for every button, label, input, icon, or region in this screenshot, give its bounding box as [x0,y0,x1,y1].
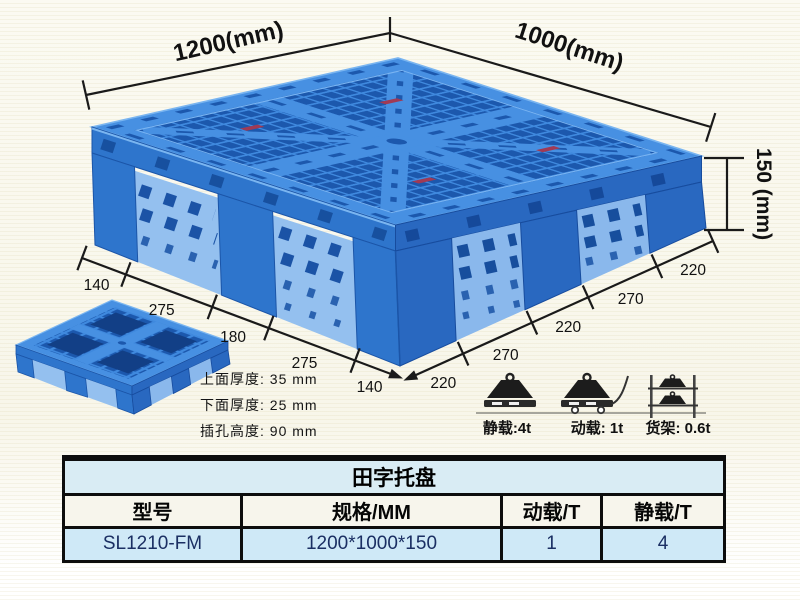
dim-height-label: 150 (mm) [752,148,775,240]
main-pallet-image [92,58,706,366]
static-load-label: 静载:4t [483,419,531,437]
spec-top-thickness: 上面厚度: 35 mm [200,371,318,387]
spec-bottom-thickness: 下面厚度: 25 mm [200,397,318,413]
rack-load-label: 货架: 0.6t [645,419,710,437]
dim-left-seg4: 275 [292,355,318,372]
cell-dynamic-load: 1 [502,527,602,561]
table-header-row: 型号 规格/MM 动载/T 静载/T [64,494,725,527]
dim-right-seg4: 270 [618,291,644,308]
spec-slot-height: 插孔高度: 90 mm [200,423,318,439]
cell-static-load: 4 [602,527,725,561]
thickness-specs: 上面厚度: 35 mm 下面厚度: 25 mm 插孔高度: 90 mm [200,371,318,439]
product-spec-table: 田字托盘 型号 规格/MM 动载/T 静载/T SL1210-FM 1200*1… [62,455,723,563]
dimension-arrowheads [388,369,418,381]
table-title: 田字托盘 [64,458,725,494]
col-header-model: 型号 [64,494,242,527]
dim-left-seg1: 140 [84,277,110,294]
rack-load-shelf-icon [648,375,698,418]
dim-right-seg3: 220 [555,319,581,336]
col-header-dynamic-load: 动载/T [502,494,602,527]
dim-right-seg5: 220 [680,262,706,279]
product-sheet-page: { "illustration": { "dims": { "width": "… [0,0,800,600]
dynamic-load-label: 动载: 1t [571,419,624,437]
dim-left-seg2: 275 [149,302,175,319]
pallet-illustration: 1200(mm) 1000(mm) 150 (mm) 140 275 180 2… [0,0,800,452]
dim-right-seg1: 220 [430,375,456,392]
col-header-static-load: 静载/T [602,494,725,527]
dynamic-load-trolley-icon [561,374,628,413]
col-header-spec: 规格/MM [242,494,502,527]
cell-model: SL1210-FM [64,527,242,561]
dim-left-seg3: 180 [220,329,246,346]
dim-depth-label: 1000(mm) [512,17,627,77]
static-load-weight-icon [484,374,536,407]
load-capacity-icons: 静载:4t 动载: 1t 货架: 0.6t [476,374,711,437]
inset-pallet-image [16,300,230,414]
table-title-row: 田字托盘 [64,458,725,494]
cell-spec: 1200*1000*150 [242,527,502,561]
dim-left-seg5: 140 [357,379,383,396]
dim-right-seg2: 270 [493,347,519,364]
table-data-row: SL1210-FM 1200*1000*150 1 4 [64,527,725,561]
dim-width-label: 1200(mm) [171,16,286,67]
